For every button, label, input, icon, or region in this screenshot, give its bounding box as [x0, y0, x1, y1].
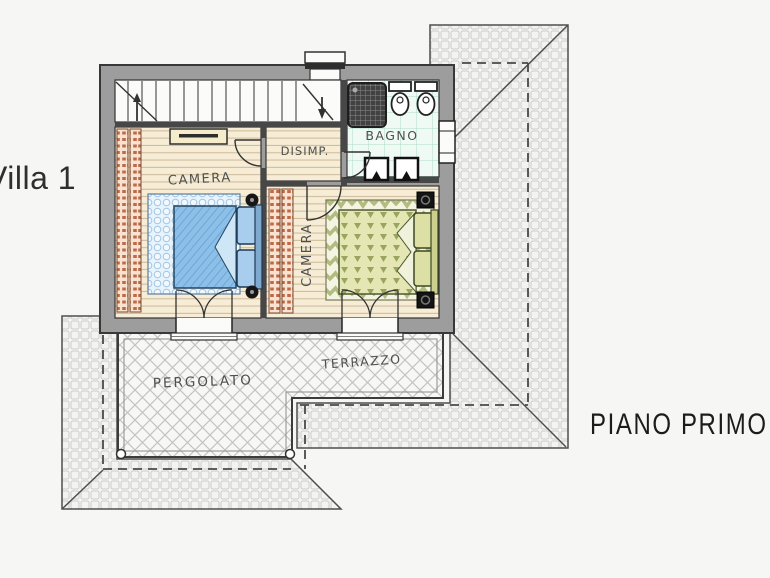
floor-plan-page: Villa 1 PIANO PRIMO [0, 0, 770, 578]
bathroom-window [439, 121, 455, 163]
chimney [305, 52, 345, 80]
nightstand [417, 292, 434, 308]
wardrobe-strip [282, 189, 293, 313]
bagno-label: BAGNO [365, 128, 418, 143]
pergola-post [117, 450, 126, 459]
headboard [255, 205, 262, 289]
wardrobe-strip [117, 129, 128, 312]
pillow [237, 207, 256, 244]
bedside-lamp-icon [250, 198, 254, 202]
nightstand [417, 192, 434, 208]
headboard [431, 210, 438, 294]
pillow [414, 213, 433, 248]
pergola-post [286, 450, 295, 459]
wardrobe-strip [130, 129, 141, 312]
shower-drain-icon [353, 88, 358, 93]
wardrobe-strip [269, 189, 280, 313]
camera2-label: CAMERA [300, 223, 315, 287]
pillow [414, 251, 433, 286]
toilet [389, 82, 411, 115]
bidet [415, 82, 437, 115]
pillow [237, 250, 256, 287]
bed-green [339, 210, 416, 294]
dresser-handle [179, 134, 218, 138]
stairs-floor [115, 80, 341, 122]
washbasin [395, 158, 418, 180]
bedside-lamp-icon [250, 290, 254, 294]
disimpegno-label: DISIMP. [281, 144, 330, 158]
floor-plan-svg: CAMERA CAMERA DISIMP. BAGNO PERGOLATO TE… [0, 0, 770, 578]
